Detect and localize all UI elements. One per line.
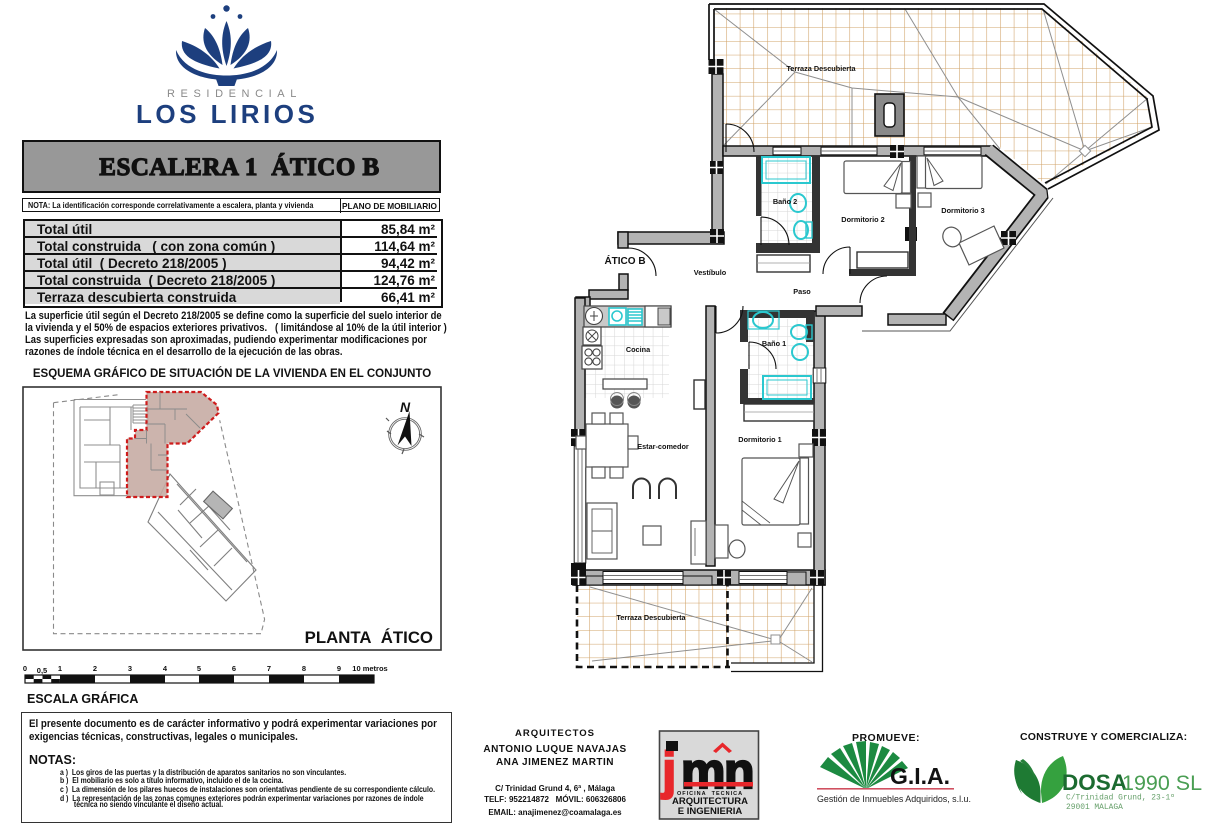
svg-text:PLANTA ÁTICO: PLANTA ÁTICO [305,628,433,647]
svg-text:5: 5 [197,664,201,673]
svg-text:1: 1 [58,664,62,673]
svg-text:Baño 1: Baño 1 [762,339,786,348]
svg-text:Paso: Paso [793,287,811,296]
svg-text:8: 8 [302,664,306,673]
svg-text:4: 4 [163,664,168,673]
svg-text:Dormitorio 1: Dormitorio 1 [738,435,781,444]
svg-text:E INGENIERIA: E INGENIERIA [678,806,743,817]
svg-text:ÁTICO B: ÁTICO B [604,254,645,267]
svg-text:6: 6 [232,664,236,673]
svg-text:Baño 2: Baño 2 [773,197,797,206]
svg-text:Dormitorio 2: Dormitorio 2 [841,215,884,224]
svg-text:G.I.A.: G.I.A. [890,763,950,789]
svg-text:Cocina: Cocina [626,345,651,354]
svg-text:7: 7 [267,664,271,673]
svg-text:Vestíbulo: Vestíbulo [694,268,727,277]
svg-text:DOSA: DOSA [1062,770,1127,795]
svg-text:Gestión de Inmuebles Adquirido: Gestión de Inmuebles Adquiridos, s.l.u. [817,794,971,804]
svg-text:Estar-comedor: Estar-comedor [637,442,689,451]
svg-text:Dormitorio 3: Dormitorio 3 [941,206,984,215]
svg-text:Terraza Descubierta: Terraza Descubierta [786,64,856,73]
svg-text:0: 0 [23,664,27,673]
svg-text:1990 SL: 1990 SL [1122,771,1202,795]
svg-text:2: 2 [93,664,97,673]
svg-text:0,5: 0,5 [37,666,47,675]
svg-text:29001 MALAGA: 29001 MALAGA [1066,803,1123,812]
svg-text:C/Trinidad Grund, 23-1º: C/Trinidad Grund, 23-1º [1066,794,1175,803]
svg-text:N: N [400,399,411,415]
svg-text:10 metros: 10 metros [352,664,387,673]
svg-text:3: 3 [128,664,132,673]
svg-text:9: 9 [337,664,341,673]
svg-text:Terraza Descubierta: Terraza Descubierta [616,613,686,622]
